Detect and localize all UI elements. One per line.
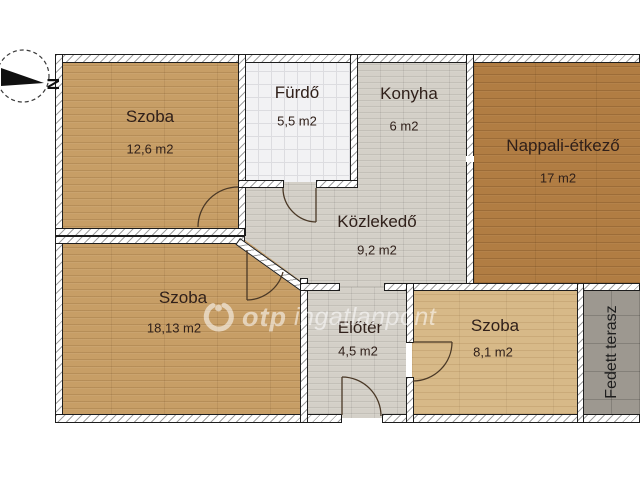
room-label-eloter: Előtér [338,318,382,338]
room-label-szoba-1: Szoba [126,107,174,127]
room-area-szoba-1: 12,6 m2 [127,142,174,157]
room-label-szoba-3: Szoba [471,316,519,336]
door-arc-entry [342,377,381,416]
compass-north-icon: N [0,44,62,110]
room-area-konyha: 6 m2 [390,119,419,134]
floor-plan-canvas: N Szoba 12,6 m2 Fürdő 5,5 m2 Konyha 6 m2… [0,0,640,480]
room-label-furdo: Fürdő [275,83,319,103]
room-label-kozlekedo: Közlekedő [337,212,416,232]
room-area-nappali: 17 m2 [540,171,576,186]
door-arcs-layer [0,0,640,480]
compass-north-label: N [44,78,62,90]
door-arc-szoba3 [413,342,452,381]
room-area-szoba-3: 8,1 m2 [473,345,513,360]
door-arc-szoba1 [198,187,238,227]
room-area-kozlekedo: 9,2 m2 [357,243,397,258]
room-area-eloter: 4,5 m2 [338,344,378,359]
room-area-szoba-2: 18,13 m2 [147,321,201,336]
room-label-fedett-terasz: Fedett terasz [603,305,621,398]
room-area-furdo: 5,5 m2 [277,114,317,129]
door-arc-furdo [283,188,316,222]
room-label-nappali: Nappali-étkező [506,136,619,156]
room-label-konyha: Konyha [380,84,438,104]
room-label-szoba-2: Szoba [159,288,207,308]
door-arc-szoba2 [247,272,283,300]
